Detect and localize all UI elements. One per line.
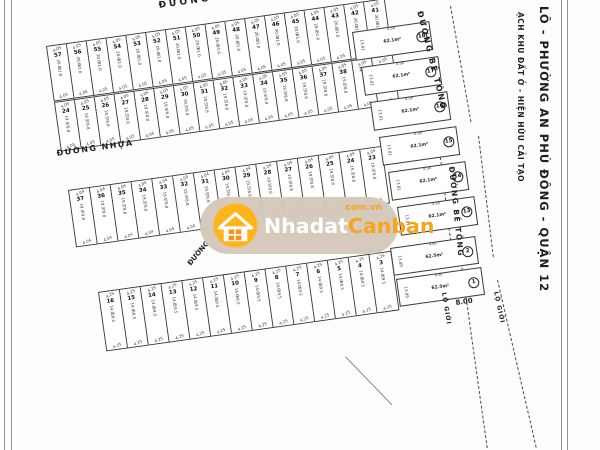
plot-width-dim-bottom: 4.04 [81,237,91,245]
plot-area: 81.0 [255,39,261,49]
plot-edge-dim: 4.58 [396,61,404,66]
plot-area: 78.8 [288,182,294,192]
plot-area: 81.0 [97,61,103,71]
plot-area: 78.8 [121,205,127,215]
plot-width-dim-bottom: 4.25 [132,338,142,346]
plot-depth-dim: 13.81 [395,179,402,191]
plot-area: 78.8 [164,109,170,119]
plot-area: 78.8 [263,95,269,105]
plot-number: 54 [113,44,121,51]
boundary-width-dimension: 8.00 [455,297,473,307]
plot-number: 42 [351,10,359,17]
dashed-lo-gioi-right [497,280,537,448]
plot-area: 78.8 [308,179,314,189]
plot-number: 55 [93,46,101,53]
plot-area: 62.1m² [395,140,444,152]
frame-line-left-outer [4,0,5,450]
plot-number-circled: 1 [467,276,479,288]
plot-number: 56 [74,49,82,56]
dashed-road-edge-3 [478,136,494,257]
plot-area: 78.8 [105,117,111,127]
plot-width-dim-bottom: 4.25 [382,303,392,311]
plot-number: 44 [311,16,319,23]
plot-area: 81.0 [216,45,222,55]
plot-width-dim-bottom: 4.05 [197,72,207,80]
plot-edge-dim: 4.50 [434,273,442,278]
plot-area: 78.8 [204,103,210,113]
plot-number: 46 [272,21,280,28]
plot-area: 62.5m² [406,250,463,263]
plot-width-dim-bottom: 4.05 [184,124,194,132]
plot-area: 81.0 [77,64,83,74]
plot-area: 62.1m² [377,70,426,82]
plot-width-dim-bottom: 4.04 [185,223,195,231]
plot-area: 59.5 [193,301,199,311]
plot-width-dim-bottom: 4.25 [216,327,226,335]
plot-depth-dim: 13.81 [368,74,375,86]
plot-width-dim-bottom: 4.05 [158,78,168,86]
cadastral-map-page: ĐƯỜNG NHỰA ĐƯỜNG NHỰA ĐƯỜNG BÊ TÔNG ĐƯỜN… [0,0,600,450]
plot-width-dim-bottom: 4.25 [340,309,350,317]
plot-number-circled: 13 [461,206,473,218]
plot-number: 57 [54,52,62,59]
plot-width-dim: 4.25 [354,256,364,265]
plot-block: 4.251614.059.54.254.251514.059.54.254.25… [98,251,399,352]
plot-width-dim-bottom: 4.05 [224,119,234,127]
plot-area: 81.0 [57,67,63,77]
plot-width-dim-bottom: 4.04 [144,229,154,237]
plot-area: 78.8 [85,120,91,130]
plot-area: 59.5 [276,290,282,300]
dashed-road-edge-1 [450,6,471,122]
plot-area: 59.5 [130,310,136,320]
plot-width-dim-bottom: 4.25 [174,333,184,341]
plot-width-dim: 4.25 [312,261,322,270]
plot-area: 78.8 [342,84,348,94]
plot-edge-dim: 4.58 [423,166,431,171]
plot-depth-dim: 13.81 [359,39,366,51]
plot-area: 81.0 [235,42,241,52]
plot-area: 81.0 [295,34,301,44]
plot-area: 78.8 [142,202,148,212]
plot-area: 78.8 [371,170,377,180]
plot-area: 78.8 [283,92,289,102]
plot-area: 78.8 [246,188,252,198]
plot-depth-dim: 13.81 [386,144,393,156]
plot-edge-dim: 4.58 [387,26,395,31]
plot-area: 78.8 [100,208,106,218]
plot-width-dim-bottom: 4.05 [78,89,88,97]
plot-cell-wide: 4.5813.8162.1m²15 [379,126,460,166]
plot-number: 49 [212,30,220,37]
plot-width-dim: 4.25 [333,258,343,267]
plot-area: 81.0 [196,48,202,58]
plot-number: 52 [153,38,161,45]
plot-width-dim-bottom: 4.05 [217,69,227,77]
plot-area: 78.8 [223,100,229,110]
plot-width-dim-bottom: 4.05 [164,127,174,135]
plot-area: 62.1m² [368,35,417,47]
plot-width-dim-bottom: 4.05 [296,58,306,66]
plot-area: 59.5 [338,281,344,291]
plot-area: 62.1m² [404,175,453,187]
plot-area: 78.8 [184,196,190,206]
plot-area: 78.8 [204,193,210,203]
plot-area: 78.8 [124,114,130,124]
plot-area: 78.8 [80,211,86,221]
map-subtitle-vertical: ẠCH KHU ĐẤT Ở - HIỆN HỮU CẢI TẠO [516,12,525,252]
plot-area: 78.8 [329,176,335,186]
plot-area: 59.5 [255,292,261,302]
plot-edge-dim: 4.50 [428,242,436,247]
watermark-brand-first: Nhadat [264,214,348,238]
plot-number: 6 [316,269,321,275]
plot-number: 51 [173,35,181,42]
plot-width-dim: 4.25 [250,270,260,279]
plot-area: 59.5 [318,284,324,294]
house-icon [213,203,258,248]
plot-number: 43 [331,13,339,20]
plot-width-dim-bottom: 4.25 [112,341,122,349]
plot-area: 59.5 [110,313,116,323]
plot-width-dim-bottom: 4.04 [102,234,112,242]
frame-line-right-outer [567,0,568,450]
plot-area: 59.5 [359,278,365,288]
plot-number: 48 [232,27,240,34]
plot-area: 78.8 [322,86,328,96]
plot-area: 78.8 [267,185,273,195]
plot-depth-dim: 13.81 [377,109,384,121]
plot-depth-dim: 13.89 [397,255,404,267]
plot-number: 8 [274,275,279,281]
plot-depth-dim: 13.89 [403,286,410,298]
boundary-extension-line [345,356,392,405]
plot-area: 81.0 [315,31,321,41]
plot-width-dim: 4.25 [271,267,281,276]
frame-line-right-inner [561,0,562,450]
plot-width-dim-bottom: 4.05 [244,116,254,124]
plot-number: 3 [379,260,384,266]
plot-number-circled: 15 [443,136,455,148]
plot-number: 7 [295,272,300,278]
plot-number: 5 [337,266,342,272]
plot-area: 59.5 [234,295,240,305]
plot-number: 47 [252,24,260,31]
plot-area: 78.8 [350,173,356,183]
plot-width-dim-bottom: 4.05 [138,80,148,88]
plot-width-dim-bottom: 4.25 [278,318,288,326]
road-label-asphalt-top: ĐƯỜNG NHỰA [158,0,259,11]
plot-area: 81.0 [176,50,182,60]
plot-area: 59.5 [380,275,386,285]
plot-area: 81.0 [156,53,162,63]
plot-width-dim-bottom: 4.05 [118,83,128,91]
plot-number: 53 [133,41,141,48]
plot-width-dim-bottom: 4.05 [336,53,346,61]
watermark-domain: com.vn [345,203,382,213]
plot-width-dim-bottom: 4.05 [177,75,187,83]
plot-width-dim-bottom: 4.05 [264,113,274,121]
plot-area: 81.0 [275,36,281,46]
plot-area: 81.0 [117,59,123,69]
plot-area: 62.5m² [412,281,469,294]
plot-area: 78.8 [184,106,190,116]
plot-area: 78.8 [65,123,71,133]
plot-number: 23 [368,155,376,162]
plot-area: 59.5 [151,307,157,317]
plot-area: 78.8 [163,199,169,209]
plot-width-dim-bottom: 4.05 [343,102,353,110]
plot-width-dim-bottom: 4.04 [123,232,133,240]
plot-width-dim-bottom: 4.25 [153,336,163,344]
plot-edge-dim: 4.58 [414,131,422,136]
plot-width-dim-bottom: 4.25 [195,330,205,338]
plot-number: 50 [192,32,200,39]
plot-width-dim-bottom: 4.05 [257,64,267,72]
plot-area: 59.5 [214,298,220,308]
plot-width-dim-bottom: 4.04 [164,226,174,234]
plot-width-dim-bottom: 4.05 [204,122,214,130]
plot-width-dim-bottom: 4.05 [283,110,293,118]
plot-area: 62.1m² [386,105,435,117]
plot-width-dim: 4.25 [292,264,302,273]
plot-width-dim-bottom: 4.05 [98,86,108,94]
frame-line-left-inner [11,0,12,450]
plot-width-dim-bottom: 4.05 [316,55,326,63]
plot-number: 4 [358,263,363,269]
watermark-brand: NhadatCanban [264,214,434,238]
plot-width-dim-bottom: 4.05 [276,61,286,69]
plot-width-dim-bottom: 4.25 [236,324,246,332]
plot-width-dim-bottom: 4.05 [323,105,333,113]
plot-width-dim-bottom: 4.25 [319,312,329,320]
plot-width-dim-bottom: 4.05 [58,91,68,99]
plot-width-dim-bottom: 4.25 [361,306,371,314]
plot-number: 45 [291,19,299,26]
watermark-badge: NhadatCanban com.vn [200,197,398,254]
plot-width-dim-bottom: 4.05 [303,108,313,116]
plot-width-dim-bottom: 4.25 [299,315,309,323]
plot-area: 81.0 [136,56,142,66]
plot-area: 59.5 [297,287,303,297]
plot-number: 9 [254,278,259,284]
plot-area: 81.0 [334,28,340,38]
plot-area: 78.8 [144,111,150,121]
plot-area: 78.8 [243,97,249,107]
map-title-vertical: LÔ - PHƯỜNG AN PHÚ ĐÔNG - QUẬN 12 [537,6,551,326]
plot-width-dim-bottom: 4.05 [237,66,247,74]
watermark-brand-second: Canban [348,214,435,238]
plot-edge-dim: 4.58 [432,201,440,206]
plot-area: 78.8 [303,89,309,99]
plot-width-dim-bottom: 4.25 [257,321,267,329]
plot-width-dim-bottom: 4.05 [145,130,155,138]
plot-edge-dim: 4.58 [405,96,413,101]
plot-area: 59.5 [172,304,178,314]
